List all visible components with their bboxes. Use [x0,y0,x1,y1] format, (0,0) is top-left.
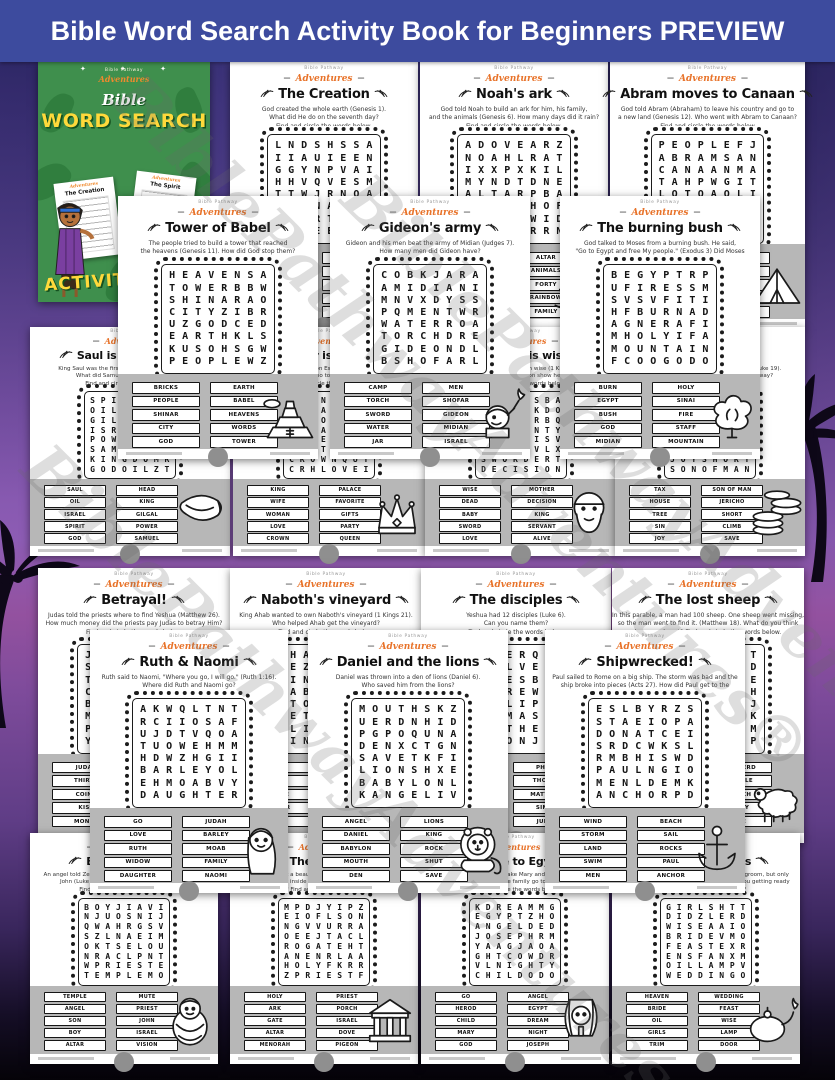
word-list-band: KINGWIFEWOMANLOVECROWNPALACEFAVORITEGIFT… [233,479,425,546]
grid-row: A K W Q L T N T [140,704,238,716]
page-number-badge [398,881,418,901]
word-pill: OIL [626,1016,688,1027]
title-flourish-right-icon [243,657,257,667]
grid-row: H H V Q V E S M [275,177,373,189]
page-title: The Creation [278,87,369,102]
title-flourish-right-icon [755,856,769,866]
word-pill: WIDOW [104,857,172,869]
grid-row: E I O F L S O N [284,912,364,922]
title-flourish-right-icon [275,223,289,233]
footer-copyright-text [182,549,222,552]
grid-row: W A T E R R O A [381,319,479,331]
title-flourish-left-icon [578,657,592,667]
grid-row: U E R D N H I D [359,717,457,729]
word-list-column: KINGWIFEWOMANLOVECROWN [247,483,309,545]
grid-row: S V S V F I T I [611,295,709,307]
word-list-column: BRICKSPEOPLESHINARCITYGOD [132,380,200,450]
footer-url-text [38,1057,94,1060]
word-list-column: HOLYARKGATEALTARMENORAH [244,990,306,1052]
grid-row: B S H O F A R L [381,356,479,368]
grid-row: M O U N T A I N [611,344,709,356]
word-list-band: CAMPTORCHSWORDWATERJARMENSHOFARGIDEONMID… [330,374,530,449]
instruction-text: Daniel was thrown into a den of lions (D… [308,674,508,691]
grid-row: M N V X D Y S S [381,295,479,307]
brand-logo: Bible PathwayAdventures [230,67,418,84]
word-pill: SWORD [439,521,501,532]
title-flourish-left-icon [638,595,652,605]
page-title: The lost sheep [656,593,760,608]
grid-row: E A R T H K L S [169,331,267,343]
word-pill: CHILD [435,1016,497,1027]
brand-logo: Bible PathwayAdventures [610,67,805,84]
word-pill: TRIM [626,1040,688,1051]
brand-name-script: Adventures [330,207,530,218]
grid-row: E G Y P T Z H O [475,912,555,922]
title-flourish-left-icon [458,89,472,99]
word-pill: HOUSE [629,497,691,508]
instruction-line: Who saved him from the lions? [308,682,508,690]
grid-row: W E D D I N G O [666,971,746,981]
title-flourish-left-icon [243,595,257,605]
page-title-row: Abram moves to Canaan [610,87,805,102]
word-pill: ANGEL [44,1004,106,1015]
grid-row: P A U L N G I O [596,765,694,777]
word-pill: BRICKS [132,382,200,394]
word-pill: BUSH [574,409,642,421]
word-pill: GIRLS [626,1028,688,1039]
brand-name-script: Adventures [230,579,422,590]
word-pill: ISRAEL [44,509,106,520]
footer-copyright-text [240,886,280,889]
word-pill: ALTAR [244,1028,306,1039]
grid-row: W P R I E S T E [84,961,164,971]
footer-url-text [38,549,94,552]
word-search-grid: E S L B Y R Z SS T A E I O P AD O N A T … [588,698,702,808]
word-pill: MENORAH [244,1040,306,1051]
grid-row: A N C H O R P D [596,790,694,802]
word-pill: JAR [344,436,412,448]
grid-row: K D R E A M M G [475,903,555,913]
word-pill: DANIEL [322,830,390,842]
word-list-column: HEAVENBRIDEOILGIRLSTRIM [626,990,688,1052]
brand-name-small: Bible Pathway [610,67,805,72]
grid-row: S R D C W K S L [596,741,694,753]
word-pill: WIFE [247,497,309,508]
word-pill: GILGAL [116,509,178,520]
page-title-row: Daniel and the lions [308,655,508,670]
footer-url-text [241,549,297,552]
word-pill: WISE [439,485,501,496]
word-pill: SWIM [559,857,627,869]
brand-logo: Bible PathwayAdventures [230,573,422,590]
footer-url-text [316,886,372,889]
grid-row: O E E J T A C L [284,932,364,942]
footer-copyright-text [712,452,752,455]
word-pill: SON [44,1016,106,1027]
torch-man-icon [475,385,529,445]
page-number-badge [696,1052,716,1072]
footer-url-text [623,549,679,552]
grid-row: C O B K J A R A [381,270,479,282]
page-number-badge [420,447,440,467]
instruction-line: Who helped Ahab get the vineyard? [230,620,422,629]
word-pill: TREE [629,509,691,520]
page-title: Gideon's army [379,221,481,236]
brand-logo: Bible Pathway Adventures [38,69,210,84]
grid-row: T O R C H D R E [381,331,479,343]
brand-name-small: Bible Pathway [330,201,530,206]
word-pill: GOD [132,436,200,448]
word-search-grid: K D R E A M M GE G Y P T Z H OA N G E L … [469,898,561,986]
grid-row: N R A C L P N T [84,952,164,962]
instruction-line: Can you name them? [421,620,611,629]
brand-name-small: Bible Pathway [560,201,760,206]
grid-row: G H T C O W D R [475,952,555,962]
title-flourish-left-icon [83,595,97,605]
instruction-text: Paul sailed to Rome on a big ship. The s… [545,674,745,691]
instruction-line: God told Abram (Abraham) to leave his co… [610,106,805,115]
brand-name-script: Adventures [420,73,608,84]
king-icon [562,482,616,542]
title-flourish-right-icon [483,657,497,667]
title-flourish-right-icon [764,595,778,605]
grid-row: S H I N A R A O [169,295,267,307]
footer-url-text [238,1057,294,1060]
anchor-icon [690,819,744,879]
footer-copyright-text [370,1057,410,1060]
title-flourish-right-icon [374,89,388,99]
word-search-grid: B O Y J I A V IN J U O S N I JQ W A H R … [78,898,170,986]
word-pill: TORCH [344,396,412,408]
worksheet-page-ship: Bible PathwayAdventuresShipwrecked!Paul … [545,630,745,893]
brand-name-script: Adventures [38,579,230,590]
footer-copyright-text [482,452,522,455]
word-pill: CROWN [247,533,309,544]
word-pill: BRIDE [626,1004,688,1015]
grid-row: G I R L S H T T [666,903,746,913]
instruction-line: Find and circle the words below [610,123,805,127]
brand-logo: Bible PathwayAdventures [560,201,760,218]
grid-row: M O U T H S K Z [359,704,457,716]
grid-row: S A V E T K F I [359,753,457,765]
word-pill: LOVE [247,521,309,532]
instruction-text: The people tried to build a tower that r… [118,240,318,257]
page-title-row: Noah's ark [420,87,608,102]
title-flourish-right-icon [566,595,580,605]
grid-row: H D W Z H G I I [140,753,238,765]
grid-row: J O S E P H R M [475,932,555,942]
title-flourish-right-icon [171,595,185,605]
title-flourish-left-icon [260,89,274,99]
footer-url-text [98,886,154,889]
word-list-column: TAXHOUSETREESINJOY [629,483,691,545]
word-pill: WIND [559,816,627,828]
grid-row: A G N E R A F I [611,319,709,331]
grid-row: N J U O S N I J [84,912,164,922]
grid-row: I X X P X K I L [465,165,563,177]
page-title: The burning bush [597,221,723,236]
grid-row: T O W E R B B W [169,283,267,295]
ziggurat-icon [263,385,317,445]
preview-collage: Bible Word Search Activity Book for Begi… [0,0,835,1080]
page-title-row: Naboth's vineyard [230,593,422,608]
brand-logo: Bible PathwayAdventures [420,67,608,84]
coins-icon [750,482,804,542]
instruction-line: Where did Ruth and Naomi go? [90,682,288,690]
word-list-band: TEMPLEANGELSONBOYALTARMUTEPRIESTJOHNISRA… [30,986,218,1054]
word-pill: PEOPLE [132,396,200,408]
instruction-text: God created the whole earth (Genesis 1).… [230,106,418,127]
grid-row: M H O L Y I F A [611,331,709,343]
instruction-line: King Ahab wanted to own Naboth's vineyar… [230,612,422,621]
brand-logo: Bible PathwayAdventures [38,573,230,590]
title-flourish-right-icon [698,657,712,667]
brand-logo: Bible PathwayAdventures [545,635,745,652]
woman-icon [233,819,287,879]
footer-url-text [126,452,182,455]
instruction-line: Ruth said to Naomi, "Where you go, I wil… [90,674,288,683]
footer-url-text [620,1057,676,1060]
instruction-text: Ruth said to Naomi, "Where you go, I wil… [90,674,288,691]
word-pill: JOY [629,533,691,544]
worksheet-page-bush: Bible PathwayAdventuresThe burning bushG… [560,196,760,459]
word-pill: GOD [574,423,642,435]
word-pill: BOY [44,1028,106,1039]
grid-row: A N E N R L A A [284,952,364,962]
footer-copyright-text [170,1057,210,1060]
grid-row: S Z L N A E I M [84,932,164,942]
word-pill: GO [435,992,497,1003]
instruction-line: Daniel was thrown into a den of lions (D… [308,674,508,683]
instruction-text: God talked to Moses from a burning bush.… [560,240,760,257]
title-flourish-left-icon [59,350,73,360]
grid-row: Y A A G J A O A [475,942,555,952]
word-pill: DEAD [439,497,501,508]
brand-name-script: Adventures [308,641,508,652]
page-number-badge [650,447,670,467]
instruction-text: Gideon and his men beat the army of Midi… [330,240,530,257]
word-list-band: GOHERODCHILDMARYGODANGELEGYPTDREAMNIGHTJ… [421,986,609,1054]
page-number-badge [511,544,531,564]
word-list-band: SAULOILISRAELSPIRITGODHEADKINGGILGALPOWE… [30,479,230,546]
word-pill: SHINAR [132,409,200,421]
footer-url-text [568,452,624,455]
brand-name-small: Bible Pathway [545,635,745,640]
instruction-line: Paul sailed to Rome on a big ship. The s… [545,674,745,683]
title-flourish-left-icon [121,657,135,667]
brand-name-small: Bible Pathway [90,635,288,640]
title-flourish-right-icon [799,89,813,99]
grid-row: B E G Y P T R P [611,270,709,282]
brand-name-small: Bible Pathway [612,573,804,578]
cover-main-title: WORD SEARCH [38,110,210,132]
grid-row: E H M O A B V Y [140,778,238,790]
page-title: Naboth's vineyard [261,593,391,608]
title-flourish-right-icon [727,223,741,233]
word-list-column: WISEDEADBABYSWORDLOVE [439,483,501,545]
word-pill: MIDIAN [574,436,642,448]
instruction-line: Judas told the priests where to find Yes… [38,612,230,621]
instruction-line: In this parable, a man had 100 sheep. On… [612,612,804,621]
instruction-line: Yeshua had 12 disciples (Luke 6). [421,612,611,621]
grid-row: M P D J Y I P Z [284,903,364,913]
grid-row: B O Y J I A V I [84,903,164,913]
title-flourish-right-icon [485,223,499,233]
instruction-line: What did He do on the seventh day? [230,114,418,123]
footer-copyright-text [757,549,797,552]
word-list-column: TEMPLEANGELSONBOYALTAR [44,990,106,1052]
grid-row: L I O N S H X E [359,765,457,777]
footer-copyright-text [752,1057,792,1060]
grid-row: N O A H L R A T [465,153,563,165]
grid-row: S O N O F M A N [670,465,750,475]
title-flourish-left-icon [579,223,593,233]
grid-row: B A R L E Y O L [140,765,238,777]
word-pill: ARK [244,1004,306,1015]
grid-row: D E C I S I O N [481,465,561,475]
oil-lamp-icon [745,990,799,1050]
instruction-line: How many men did Gideon have? [330,248,530,256]
footer-copyright-text [569,549,609,552]
title-flourish-left-icon [319,657,333,667]
word-pill: OIL [44,497,106,508]
word-pill: SWORD [344,409,412,421]
sheep-icon [749,769,803,829]
word-list-band: ANGELDANIELBABYLONMOUTHDENLIONSKINGROCKS… [308,808,508,883]
word-pill: EGYPT [574,396,642,408]
page-number-badge [179,881,199,901]
lion-icon [453,819,507,879]
grid-row: C R H L O V E I [289,465,369,475]
preview-banner: Bible Word Search Activity Book for Begi… [0,0,835,62]
grid-row: G O D O I L Z T [90,465,170,475]
word-list-band: GOLOVERUTHWIDOWDAUGHTERJUDAHBARLEYMOABFA… [90,808,288,883]
grid-row: P E O P L E F J [659,140,757,152]
page-number-badge [208,447,228,467]
word-search-grid: G I R L S H T TD I D Z L E R DW I S E A … [660,898,752,986]
word-list-column: WINDSTORMLANDSWIMMEN [559,814,627,884]
word-list-band: HEAVENBRIDEOILGIRLSTRIMWEDDINGFEASTWISEL… [612,986,800,1054]
word-pill: HEROD [435,1004,497,1015]
page-title: Shipwrecked! [596,655,693,670]
brand-logo: Bible PathwayAdventures [330,201,530,218]
grid-row: O I L L A M P V [666,961,746,971]
title-flourish-left-icon [147,223,161,233]
word-pill: ANGEL [322,816,390,828]
instruction-line: and the animals (Genesis 6). How many da… [420,114,608,123]
word-pill: DAUGHTER [104,870,172,882]
instruction-line: God told Noah to build an ark for him, h… [420,106,608,115]
brand-name-script: Adventures [560,207,760,218]
grid-row: A M I D I A N I [381,283,479,295]
grid-row: O K T S E L O U [84,942,164,952]
word-pill: MOUTH [322,857,390,869]
page-title: Abram moves to Canaan [620,87,795,102]
instruction-line: so the man went to find it. (Matthew 18)… [612,620,804,629]
brand-name-script: Adventures [545,641,745,652]
word-list-column: SAULOILISRAELSPIRITGOD [44,483,106,545]
word-list-band: HOLYARKGATEALTARMENORAHPRIESTPORCHISRAEL… [230,986,418,1054]
word-search-grid: A K W Q L T N TR C I I O S A FU J D T V … [132,698,246,808]
grid-row: Z P R I E S T F [284,971,364,981]
instruction-line: How much money did the priests pay Judas… [38,620,230,629]
grid-row: K A N G E L I V [359,790,457,802]
grid-row: B R I D E V M O [666,932,746,942]
grid-row: A D O V E A R Z [465,140,563,152]
brand-name-script: Adventures [421,579,611,590]
word-search-grid: C O B K J A R AA M I D I A N IM N V X D … [373,264,487,374]
grid-row: S T A E I O P A [596,717,694,729]
word-search-grid: B E G Y P T R PU F I R E S S MS V S V F … [603,264,717,374]
title-flourish-left-icon [68,856,82,866]
word-pill: HEAD [116,485,178,496]
page-title: Daniel and the lions [337,655,480,670]
grid-row: M E N L D E M K [596,778,694,790]
grid-row: E N S F A N X M [666,952,746,962]
grid-row: U J D T V Q O A [140,729,238,741]
grid-row: A N G E L D E D [475,922,555,932]
word-search-grid: M P D J Y I P ZE I O F L S O NN G V V U … [278,898,370,986]
word-pill: POWER [116,521,178,532]
title-flourish-left-icon [602,89,616,99]
word-pill: HOLY [244,992,306,1003]
brand-name-script: Adventures [610,73,805,84]
word-pill: SPIRIT [44,521,106,532]
word-pill: ALTAR [44,1040,106,1051]
footer-copyright-text [460,886,500,889]
grid-row: C A N A A N M A [659,165,757,177]
page-title-row: Gideon's army [330,221,530,236]
brand-logo: Bible PathwayAdventures [612,573,804,590]
brand-logo: Bible PathwayAdventures [90,635,288,652]
page-number-badge [505,1052,525,1072]
grid-row: R C I I O S A F [140,717,238,729]
crown-icon [370,482,424,542]
instruction-line: Find and circle the words below. [230,123,418,127]
grid-row: K U S O H S G W [169,344,267,356]
word-list-column: ANGELDANIELBABYLONMOUTHDEN [322,814,390,884]
page-number-badge [114,1052,134,1072]
grid-row: F E A S T E X R [666,942,746,952]
word-pill: STORM [559,830,627,842]
word-list-band: TAXHOUSETREESINJOYSON OF MANJERICHOSHORT… [615,479,805,546]
worksheet-page-gideon: Bible PathwayAdventuresGideon's armyGide… [330,196,530,459]
word-list-band: WISEDEADBABYSWORDLOVEMOTHERDECISIONKINGS… [425,479,617,546]
word-pill: SIN [629,521,691,532]
footer-url-text [553,886,609,889]
brand-name-small: Bible Pathway [230,67,418,72]
brand-name-script: Adventures [612,579,804,590]
instruction-text: God told Abram (Abraham) to leave his co… [610,106,805,127]
word-pill: RUTH [104,843,172,855]
title-flourish-right-icon [395,595,409,605]
grid-row: B A B Y L O N L [359,778,457,790]
word-pill: WOMAN [247,509,309,520]
instruction-line: God created the whole earth (Genesis 1). [230,106,418,115]
grid-row: M Y N D T D N E [465,177,563,189]
grid-row: D A U G H T E R [140,790,238,802]
footer-url-text [338,452,394,455]
page-title-row: Shipwrecked! [545,655,745,670]
word-list-column: CAMPTORCHSWORDWATERJAR [344,380,412,450]
grid-row: H O L Y F K R R [284,961,364,971]
grid-row: U F I R E S S M [611,283,709,295]
grid-row: P G P O Q U N A [359,729,457,741]
worksheet-page-tower: Bible PathwayAdventuresTower of BabelThe… [118,196,318,459]
word-search-grid: M O U T H S K ZU E R D N H I DP G P O Q … [351,698,465,808]
word-pill: DEN [322,870,390,882]
grid-row: N G V V U R R A [284,922,364,932]
